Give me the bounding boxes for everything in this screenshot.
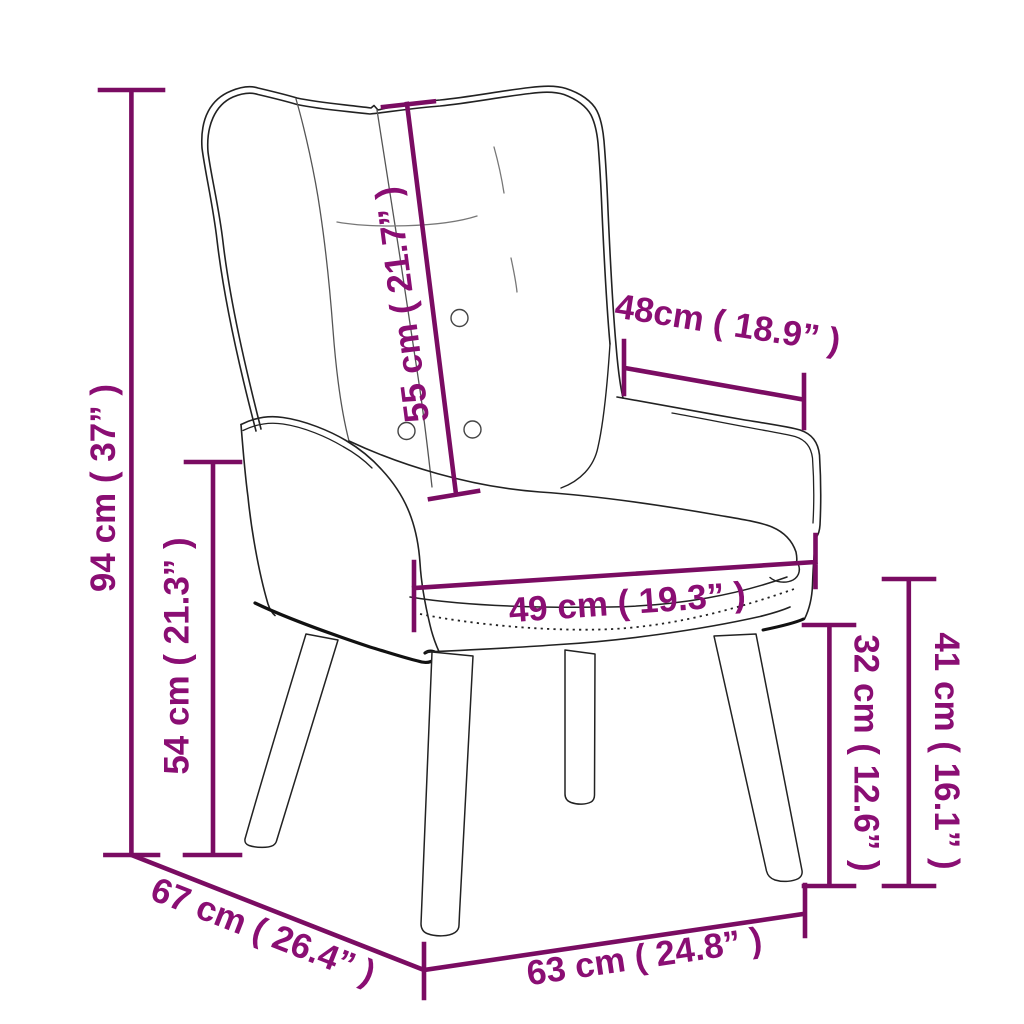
svg-text:41 cm ( 16.1” ): 41 cm ( 16.1” ): [927, 632, 966, 869]
svg-text:54 cm ( 21.3” ): 54 cm ( 21.3” ): [158, 537, 197, 774]
svg-text:32 cm ( 12.6” ): 32 cm ( 12.6” ): [847, 634, 886, 871]
svg-text:94 cm ( 37” ): 94 cm ( 37” ): [84, 384, 123, 592]
